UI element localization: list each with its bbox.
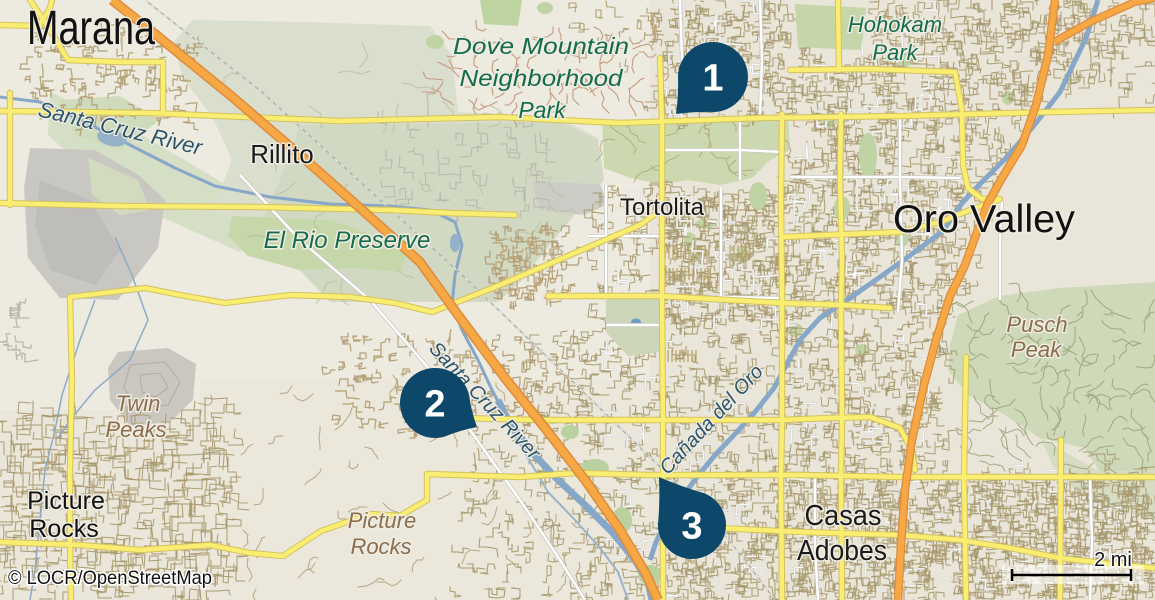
svg-text:2 mi: 2 mi (1094, 549, 1132, 571)
svg-text:Rillito: Rillito (250, 139, 314, 169)
svg-text:Casas: Casas (805, 500, 882, 532)
svg-text:2: 2 (424, 384, 445, 426)
svg-text:Twin: Twin (116, 391, 161, 416)
svg-text:© LOCR/OpenStreetMap: © LOCR/OpenStreetMap (8, 567, 212, 589)
svg-text:Picture: Picture (27, 487, 105, 515)
svg-text:Dove Mountain: Dove Mountain (453, 33, 629, 59)
svg-text:1: 1 (702, 58, 723, 100)
svg-text:Neighborhood: Neighborhood (460, 65, 624, 91)
svg-text:Oro Valley: Oro Valley (893, 198, 1075, 241)
svg-text:Rocks: Rocks (350, 534, 411, 559)
svg-text:Adobes: Adobes (797, 535, 887, 567)
svg-text:Hohokam: Hohokam (848, 12, 942, 37)
svg-text:3: 3 (681, 506, 702, 548)
svg-text:Park: Park (872, 40, 918, 65)
svg-text:Peaks: Peaks (105, 417, 166, 442)
svg-text:Pusch: Pusch (1006, 312, 1067, 337)
svg-text:Marana: Marana (27, 2, 155, 55)
svg-text:Rocks: Rocks (29, 515, 98, 543)
svg-text:Picture: Picture (348, 508, 416, 533)
svg-text:El Rio Preserve: El Rio Preserve (264, 227, 431, 254)
svg-text:Tortolita: Tortolita (620, 194, 705, 221)
svg-text:Park: Park (518, 97, 567, 123)
svg-text:Peak: Peak (1011, 337, 1062, 362)
